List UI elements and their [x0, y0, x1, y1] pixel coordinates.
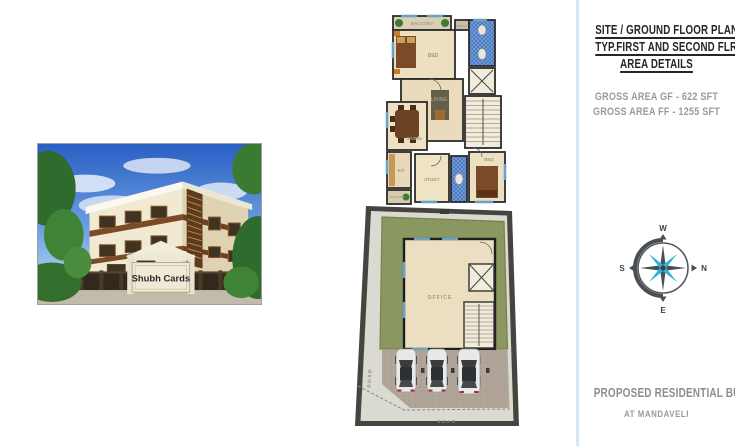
- title-block: SITE / GROUND FLOOR PLAN TYP.FIRST AND S…: [578, 22, 735, 73]
- label-road-left: ROAD: [366, 368, 372, 388]
- gross-area-gf: GROSS AREA GF - 622 SFT: [592, 90, 721, 105]
- gross-area-ff: GROSS AREA FF - 1255 SFT: [592, 105, 721, 120]
- heading-line-2: TYP.FIRST AND SECOND FLR PLAN: [595, 39, 717, 56]
- label-kitchen: KIT: [398, 168, 405, 173]
- sign-label: Shubh Cards: [132, 272, 190, 283]
- compass-hub: [660, 265, 665, 270]
- label-road-bottom: ROAD: [437, 419, 457, 424]
- balcony-plant-2: [441, 19, 449, 27]
- typical-floor-plan: BALCONY BED TOILET LIVING DINING KIT STU…: [383, 14, 511, 206]
- car-1: [395, 349, 417, 392]
- label-balcony-top: BALCONY: [411, 21, 434, 26]
- project-location: AT MANDAVELI: [587, 409, 725, 419]
- car-2: [426, 349, 448, 392]
- car-3: [457, 349, 481, 394]
- building-photo-art: Shubh Cards: [38, 144, 261, 304]
- toilet-basin: [478, 25, 486, 35]
- compass-letter-right: N: [701, 264, 707, 273]
- project-footer: PROPOSED RESIDENTIAL BUILDIN AT MANDAVEL…: [578, 386, 735, 419]
- gate-marker: [440, 209, 449, 214]
- project-title: PROPOSED RESIDENTIAL BUILDIN: [594, 386, 720, 400]
- poster-canvas: Shubh Cards: [0, 0, 735, 446]
- compass-rose: W N E S: [615, 220, 711, 316]
- area-details: GROSS AREA GF - 622 SFT GROSS AREA FF - …: [578, 90, 735, 120]
- balcony-plant-1: [395, 19, 403, 27]
- compass-letter-top: W: [659, 224, 667, 233]
- label-dining: DINING: [406, 136, 423, 141]
- building-photo: Shubh Cards: [37, 143, 262, 305]
- parked-cars: [395, 349, 490, 394]
- label-balcony-bottom: BALCONY: [391, 195, 406, 199]
- label-study: STUDY: [424, 177, 440, 182]
- kitchen-counter: [389, 154, 395, 186]
- label-bed1: BED: [428, 53, 439, 59]
- compass-letter-bottom: E: [660, 306, 666, 315]
- label-office: OFFICE: [427, 295, 452, 301]
- label-living: LIVING: [431, 97, 448, 103]
- gf-building: OFFICE: [404, 239, 495, 349]
- site-plan: OFFICE: [352, 202, 522, 434]
- label-toilet-top: TOILET: [457, 24, 468, 28]
- compass-letter-left: S: [619, 264, 625, 273]
- dining-table: [395, 110, 419, 138]
- heading-line-1: SITE / GROUND FLOOR PLAN: [595, 22, 717, 39]
- toilet-wc: [478, 49, 486, 60]
- label-bed2: BED: [484, 157, 493, 162]
- heading-line-3: AREA DETAILS: [595, 56, 717, 73]
